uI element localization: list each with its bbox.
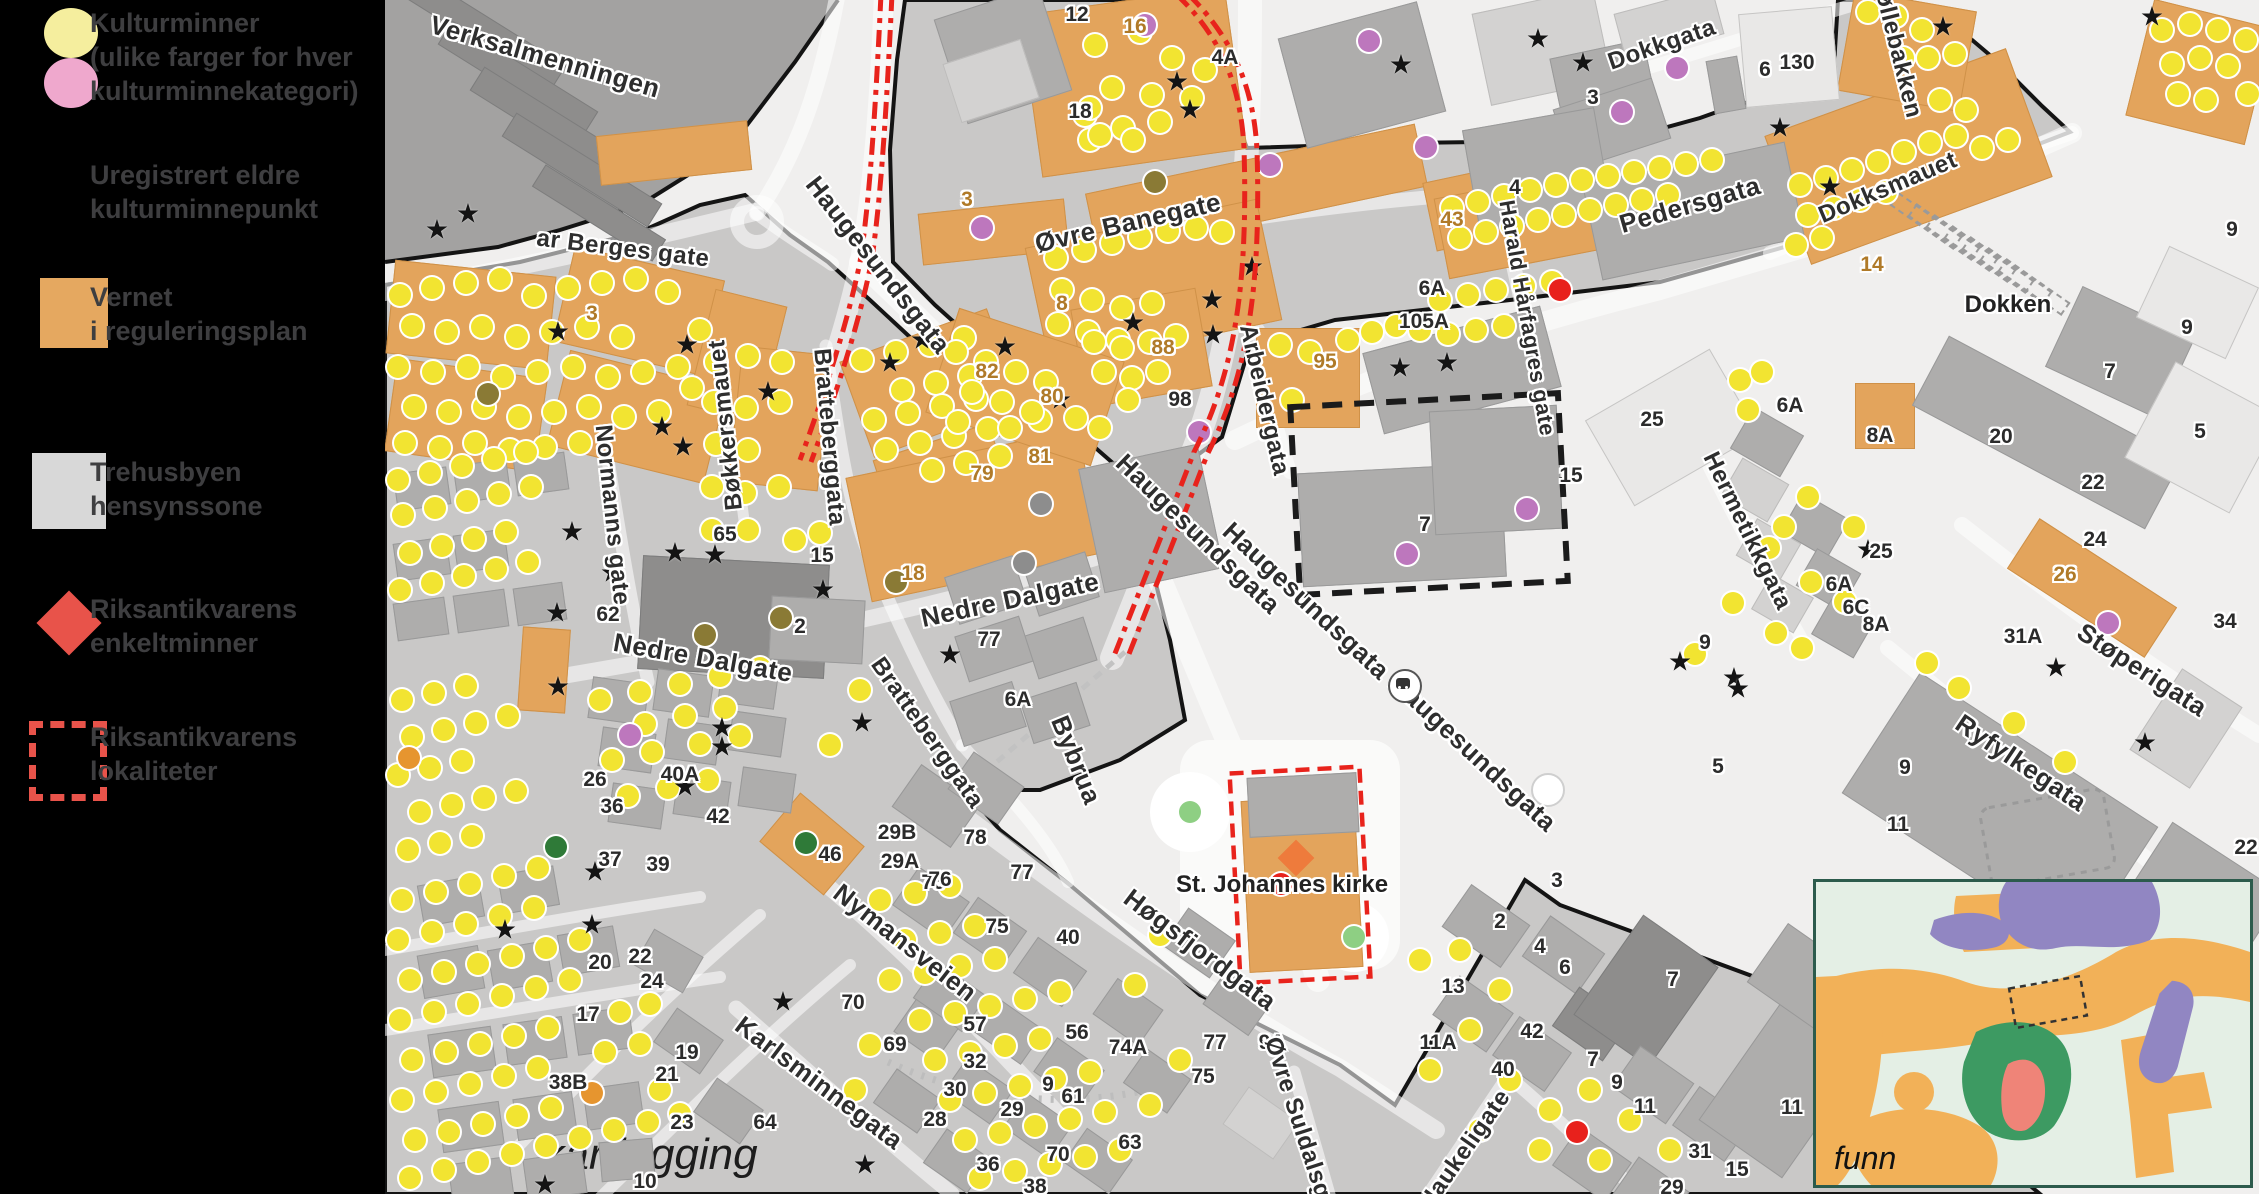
inset-map-funn: funn bbox=[1813, 879, 2253, 1188]
house-number: 7 bbox=[1419, 513, 1431, 537]
legend-item-lokaliteter: Riksantikvarens lokaliteter bbox=[90, 720, 297, 788]
house-number: 18 bbox=[901, 562, 924, 586]
house-number: 130 bbox=[1779, 51, 1814, 75]
house-number: 11 bbox=[1781, 1096, 1803, 1120]
house-number: 77 bbox=[977, 628, 1000, 652]
house-number: 20 bbox=[1989, 425, 2012, 449]
house-number: 23 bbox=[670, 1111, 693, 1135]
house-number: 65 bbox=[713, 523, 736, 547]
riksantikvaren-line bbox=[800, 0, 1258, 659]
house-number: 34 bbox=[2213, 610, 2236, 634]
house-number: 46 bbox=[818, 843, 841, 867]
house-number: 22 bbox=[2234, 836, 2257, 860]
house-number: 29A bbox=[881, 850, 920, 874]
house-number: 62 bbox=[596, 603, 619, 627]
house-number: 6A bbox=[1005, 688, 1032, 712]
house-number: 9 bbox=[1899, 756, 1911, 780]
house-number: 74A bbox=[1109, 1036, 1148, 1060]
house-number: 3 bbox=[1587, 86, 1599, 110]
house-number: 9 bbox=[1699, 631, 1711, 655]
house-number: 2 bbox=[794, 615, 806, 639]
house-number: 77 bbox=[1203, 1031, 1226, 1055]
legend-item-uregistrert: Uregistrert eldre kulturminnepunkt bbox=[90, 158, 318, 226]
house-number: 11A bbox=[1419, 1031, 1456, 1055]
house-number: 88 bbox=[1151, 336, 1174, 360]
house-number: 11 bbox=[1887, 813, 1909, 837]
inset-label: funn bbox=[1834, 1140, 1896, 1177]
house-number: 12 bbox=[1065, 3, 1088, 27]
house-number: 22 bbox=[2081, 471, 2104, 495]
house-number: 13 bbox=[1441, 975, 1464, 999]
house-number: 29 bbox=[1000, 1098, 1023, 1122]
house-number: 75 bbox=[985, 915, 1008, 939]
house-number: 26 bbox=[2053, 563, 2076, 587]
house-number: 3 bbox=[961, 188, 973, 212]
house-number: 82 bbox=[975, 360, 998, 384]
house-number: 42 bbox=[706, 805, 729, 829]
house-number: 42 bbox=[1520, 1020, 1543, 1044]
house-number: 70 bbox=[1046, 1143, 1069, 1167]
legend-item-vernet: Vernet i reguleringsplan bbox=[90, 280, 308, 348]
house-number: 29B bbox=[878, 821, 917, 845]
house-number: 63 bbox=[1118, 1131, 1141, 1155]
house-number: 64 bbox=[753, 1111, 776, 1135]
house-number: 40 bbox=[1491, 1058, 1514, 1082]
legend-panel: Kulturminner (ulike farger for hver kult… bbox=[0, 0, 385, 1194]
house-number: 15 bbox=[810, 544, 833, 568]
house-number: 10 bbox=[633, 1170, 656, 1194]
house-number: 98 bbox=[1168, 388, 1191, 412]
house-number: 81 bbox=[1028, 445, 1051, 469]
house-number: 39 bbox=[646, 853, 669, 877]
house-number: 77 bbox=[1010, 861, 1033, 885]
legend-item-kulturminner: Kulturminner (ulike farger for hver kult… bbox=[90, 6, 359, 108]
house-number: 17 bbox=[576, 1003, 599, 1027]
legend-item-trehusbyen: Trehusbyen hensynssone bbox=[90, 455, 263, 523]
house-number: 69 bbox=[883, 1033, 906, 1057]
house-number: 30 bbox=[943, 1078, 966, 1102]
dashed-area bbox=[1979, 788, 2116, 888]
legend-item-enkeltminner: Riksantikvarens enkeltminner bbox=[90, 592, 297, 660]
house-number: 15 bbox=[1559, 464, 1582, 488]
house-number: 29 bbox=[1660, 1176, 1683, 1194]
house-number: 7 bbox=[1587, 1048, 1599, 1072]
house-number: 9 bbox=[2226, 218, 2238, 242]
house-number: 24 bbox=[2083, 528, 2106, 552]
house-number: 2 bbox=[1494, 910, 1506, 934]
house-number: 6A bbox=[1826, 573, 1853, 597]
house-number: 32 bbox=[963, 1050, 986, 1074]
area-label: St. Johannes kirke bbox=[1176, 871, 1388, 899]
house-number: 57 bbox=[963, 1013, 986, 1037]
area-label: Dokken bbox=[1965, 291, 2052, 319]
house-number: 78 bbox=[963, 826, 986, 850]
house-number: 22 bbox=[628, 945, 651, 969]
house-number: 95 bbox=[1313, 350, 1336, 374]
house-number: 14 bbox=[1860, 253, 1883, 277]
house-number: 76 bbox=[928, 868, 951, 892]
house-number: 5 bbox=[2194, 420, 2206, 444]
house-number: 5 bbox=[1712, 755, 1724, 779]
house-number: 9 bbox=[1611, 1071, 1623, 1095]
house-number: 26 bbox=[583, 768, 606, 792]
house-number: 25 bbox=[1869, 540, 1892, 564]
house-number: 7 bbox=[1667, 968, 1679, 992]
house-number: 56 bbox=[1065, 1021, 1088, 1045]
house-number: 20 bbox=[588, 951, 611, 975]
house-number: 105A bbox=[1399, 310, 1449, 334]
house-number: 6A bbox=[1777, 394, 1804, 418]
house-number: 70 bbox=[841, 991, 864, 1015]
house-number: 61 bbox=[1061, 1085, 1084, 1109]
house-number: 21 bbox=[655, 1063, 678, 1087]
house-number: 7 bbox=[2104, 360, 2116, 384]
house-number: 6 bbox=[1759, 58, 1771, 82]
house-number: 6 bbox=[1559, 956, 1571, 980]
house-number: 6C bbox=[1843, 596, 1870, 620]
house-number: 15 bbox=[1725, 1158, 1748, 1182]
house-number: 37 bbox=[598, 848, 621, 872]
screenshot-root: ★★★★★★★★★★★★★★★★★★★★★★★★★★★★★★★★★★★★★★★★… bbox=[0, 0, 2259, 1194]
house-number: 11 bbox=[1634, 1095, 1656, 1119]
house-number: 9 bbox=[1042, 1073, 1054, 1097]
house-number: 18 bbox=[1068, 100, 1091, 124]
house-number: 8 bbox=[1056, 292, 1068, 316]
house-number: 40 bbox=[1056, 926, 1079, 950]
house-number: 4A bbox=[1212, 46, 1239, 70]
house-number: 31A bbox=[2004, 625, 2043, 649]
house-number: 40A bbox=[661, 763, 700, 787]
house-number: 3 bbox=[586, 302, 598, 326]
house-number: 4 bbox=[1534, 935, 1546, 959]
house-number: 43 bbox=[1440, 208, 1463, 232]
house-number: 16 bbox=[1123, 15, 1146, 39]
house-number: 19 bbox=[675, 1041, 698, 1065]
house-number: 75 bbox=[1191, 1065, 1214, 1089]
house-number: 9 bbox=[2181, 316, 2193, 340]
bus-stop-icon bbox=[1388, 669, 1422, 703]
house-number: 3 bbox=[1551, 869, 1563, 893]
house-number: 8A bbox=[1867, 424, 1894, 448]
house-number: 25 bbox=[1640, 408, 1663, 432]
lokalitet-block-boundary bbox=[1290, 393, 1567, 595]
house-number: 80 bbox=[1040, 385, 1063, 409]
house-number: 4 bbox=[1509, 176, 1521, 200]
house-number: 28 bbox=[923, 1108, 946, 1132]
house-number: 36 bbox=[600, 795, 623, 819]
house-number: 31 bbox=[1688, 1140, 1711, 1164]
house-number: 79 bbox=[970, 462, 993, 486]
house-number: 6A bbox=[1419, 277, 1446, 301]
house-number: 36 bbox=[976, 1153, 999, 1177]
house-number: 24 bbox=[640, 970, 663, 994]
house-number: 38 bbox=[1023, 1175, 1046, 1194]
house-number: 38B bbox=[549, 1071, 588, 1095]
